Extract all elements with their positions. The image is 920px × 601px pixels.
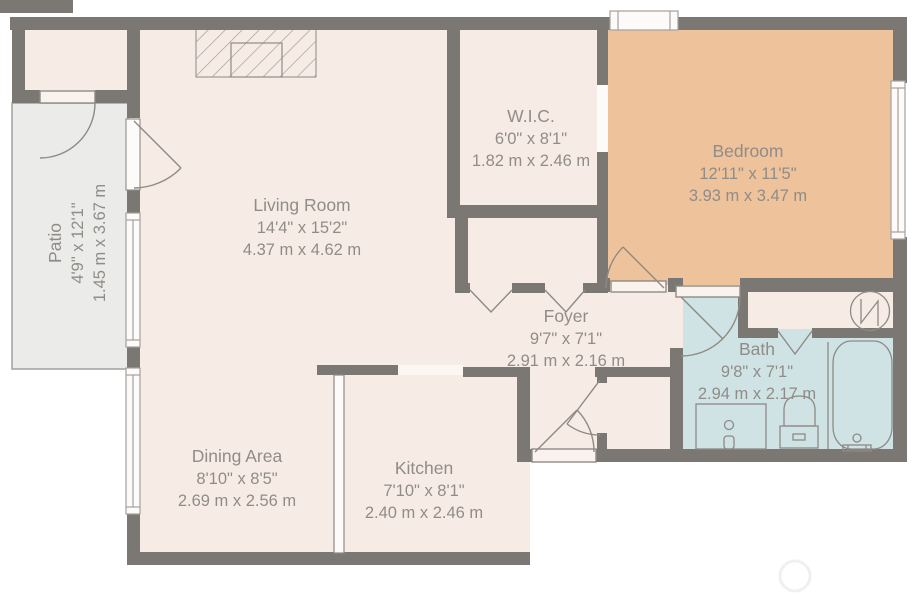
floor-plan: Living Room 14'4" x 15'2" 4.37 m x 4.62 … (0, 0, 920, 601)
kitchen-opening (398, 365, 463, 375)
bedroom-right-window (891, 81, 905, 239)
fireplace-icon (196, 28, 316, 77)
bedroom-top-window (610, 11, 678, 30)
wic-opening (597, 85, 608, 152)
watermark-circle (780, 561, 810, 591)
living-room-window (126, 213, 140, 347)
bedroom-floor (605, 28, 893, 285)
patio-floor (12, 103, 128, 369)
kitchen-divider-wall (334, 375, 344, 553)
wall-top-notch (0, 0, 73, 13)
dining-window (126, 368, 140, 514)
floor-plan-drawing (0, 0, 920, 601)
